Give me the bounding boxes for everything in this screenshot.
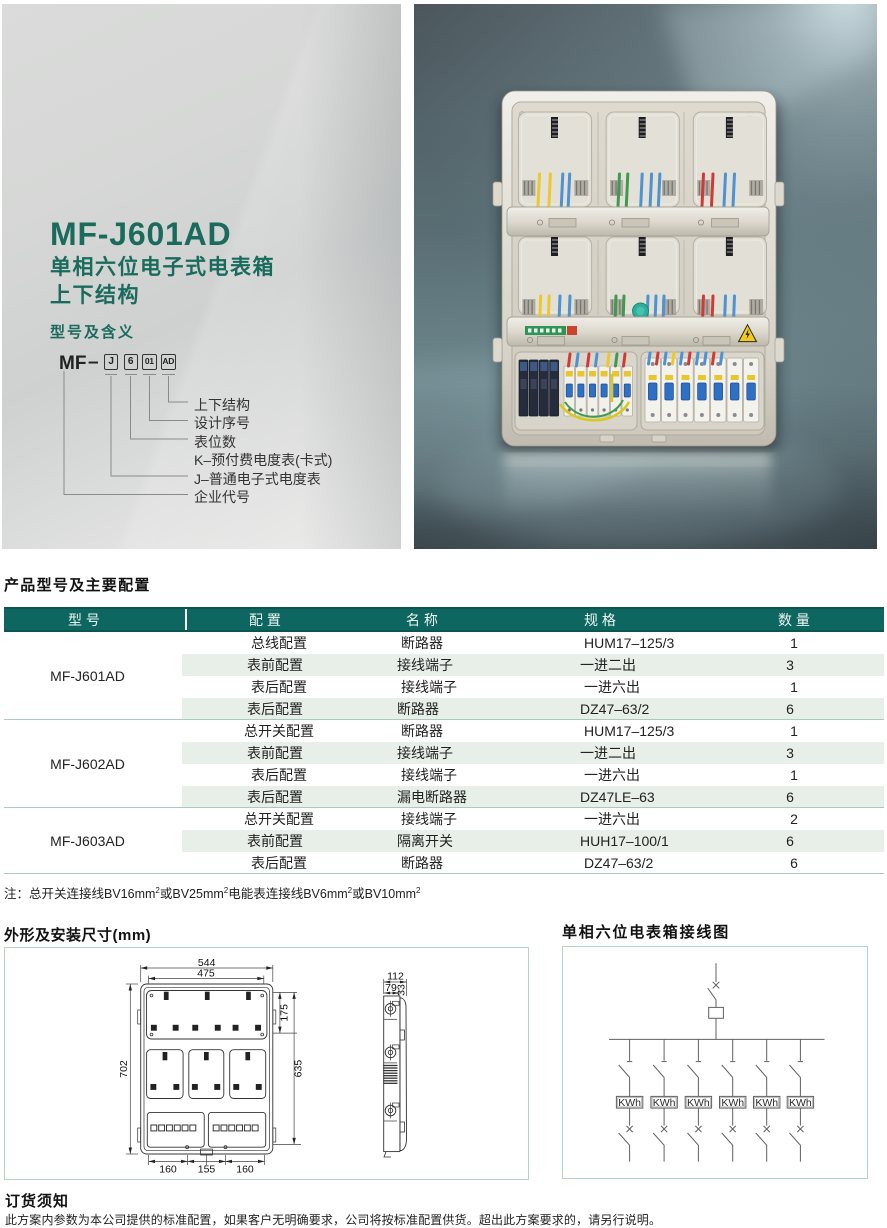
svg-text:112: 112 xyxy=(387,971,404,983)
svg-text:155: 155 xyxy=(198,1164,216,1176)
svg-text:KWh: KWh xyxy=(721,1097,744,1109)
svg-text:KWh: KWh xyxy=(687,1097,710,1109)
svg-text:KWh: KWh xyxy=(755,1097,778,1109)
svg-text:160: 160 xyxy=(159,1164,177,1176)
svg-text:702: 702 xyxy=(118,1060,130,1078)
svg-text:KWh: KWh xyxy=(618,1097,641,1109)
svg-text:KWh: KWh xyxy=(789,1097,812,1109)
svg-text:175: 175 xyxy=(278,1004,290,1022)
svg-text:KWh: KWh xyxy=(653,1097,676,1109)
svg-text:635: 635 xyxy=(293,1060,305,1078)
svg-text:33: 33 xyxy=(396,984,408,996)
svg-text:475: 475 xyxy=(197,967,215,979)
svg-text:160: 160 xyxy=(236,1164,254,1176)
